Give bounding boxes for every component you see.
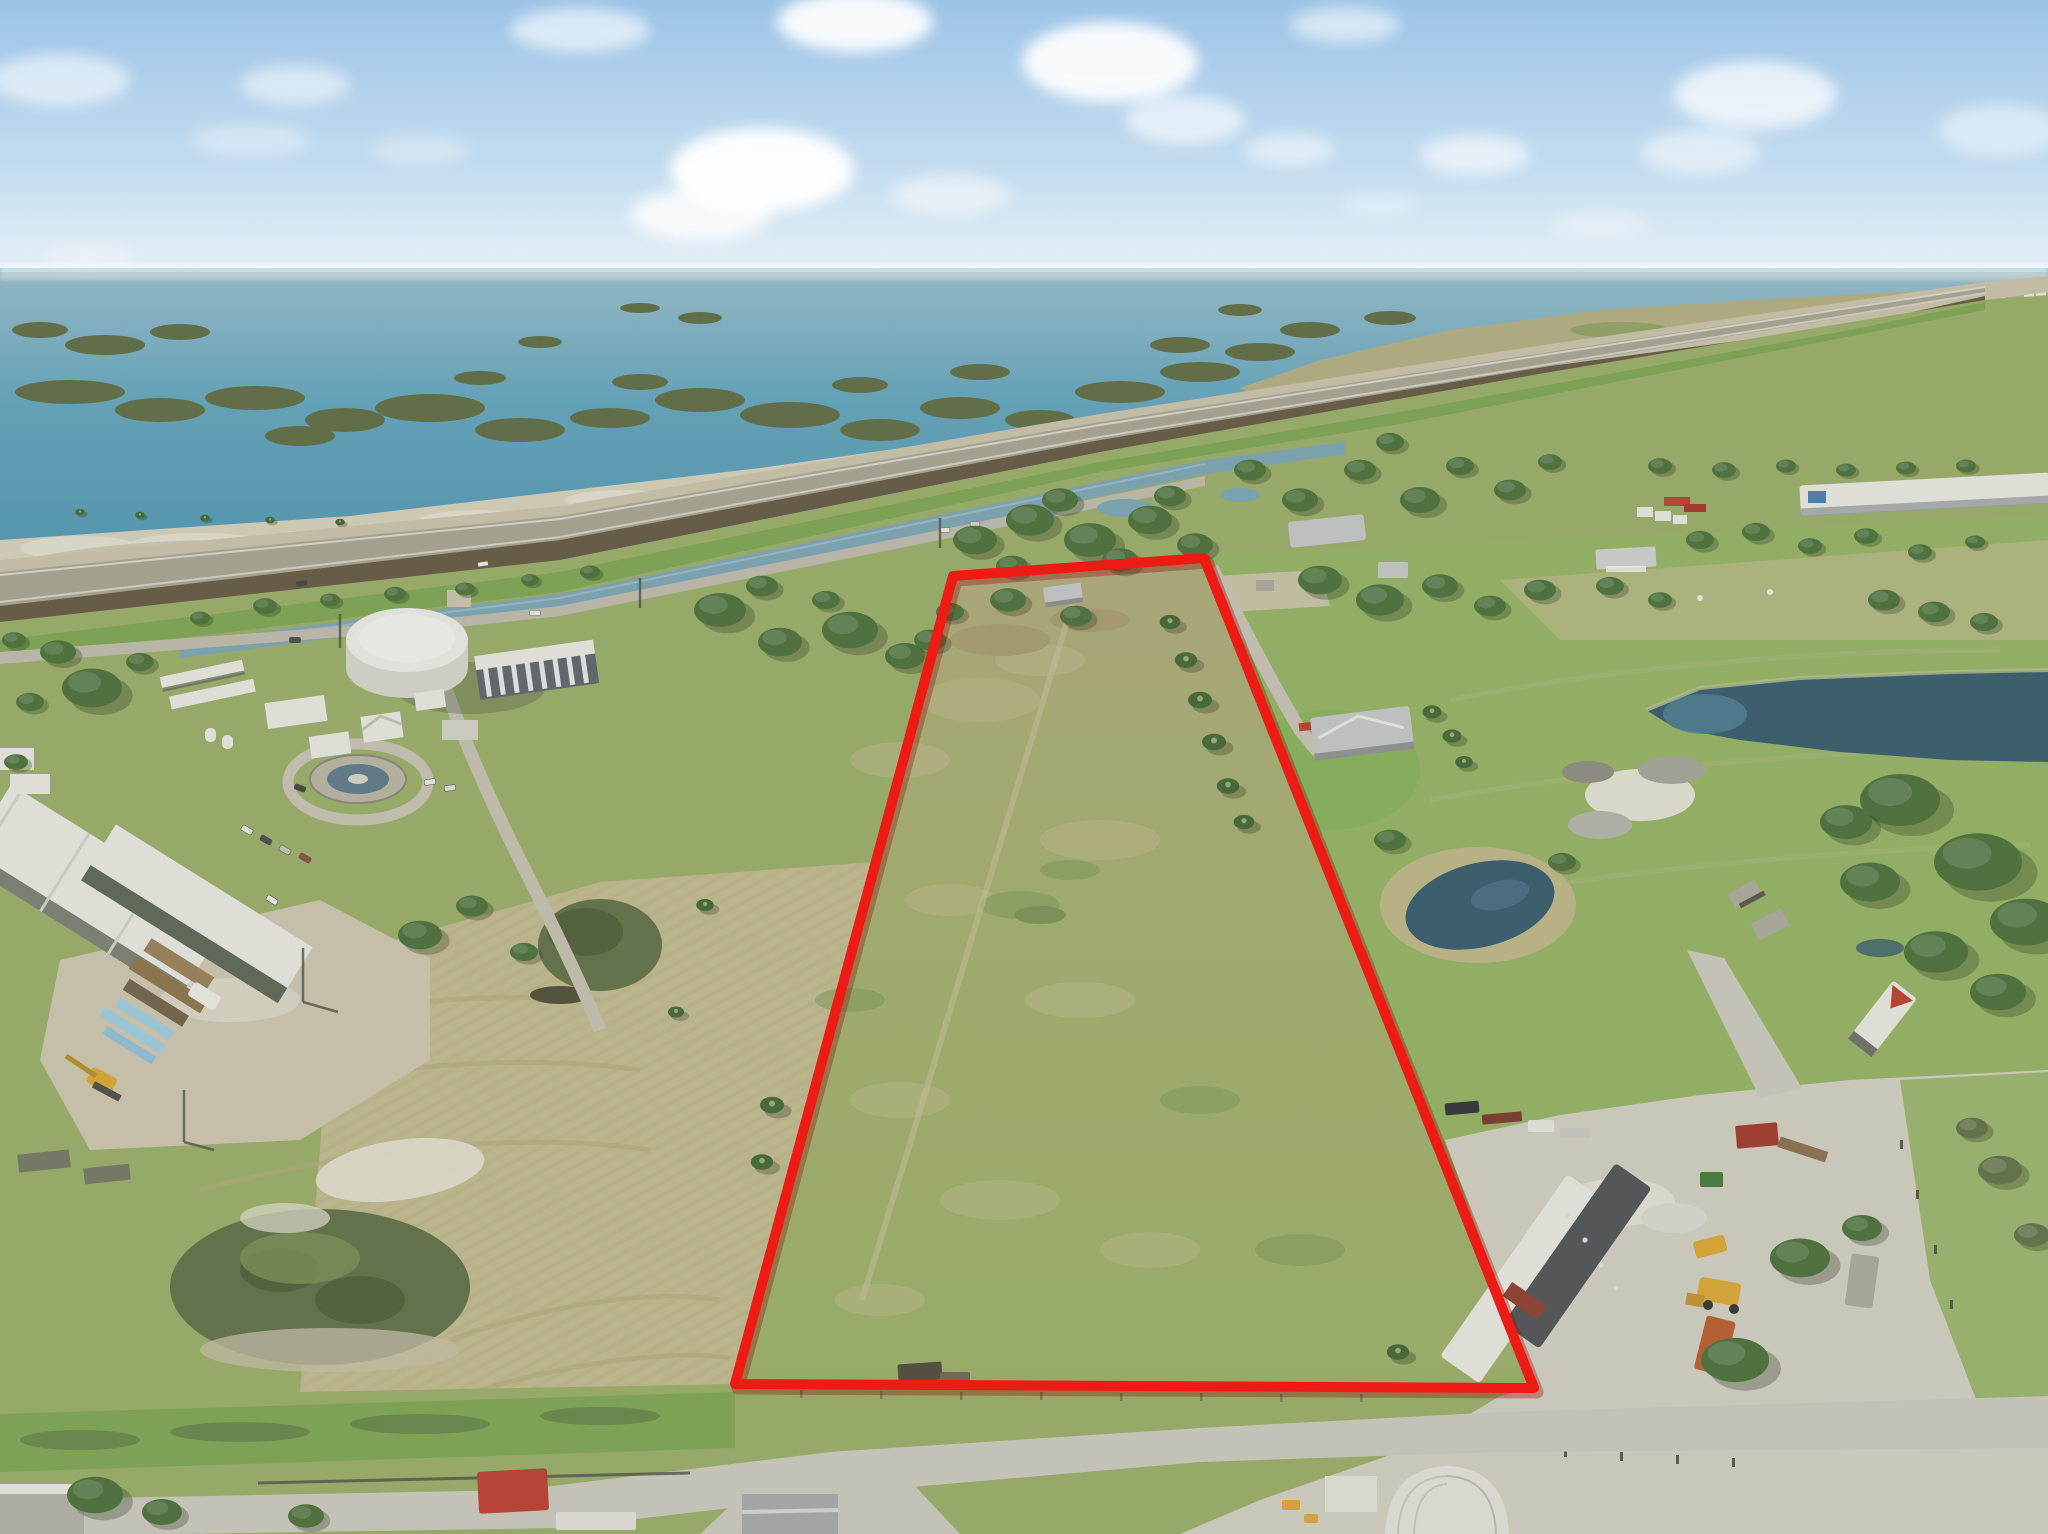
aerial-photo: Vacant land parcel outlined in red, lake… [0, 0, 2048, 1534]
aerial-photo-canvas: Vacant land parcel outlined in red, lake… [0, 0, 2048, 1534]
photo-grain [0, 272, 2048, 1534]
